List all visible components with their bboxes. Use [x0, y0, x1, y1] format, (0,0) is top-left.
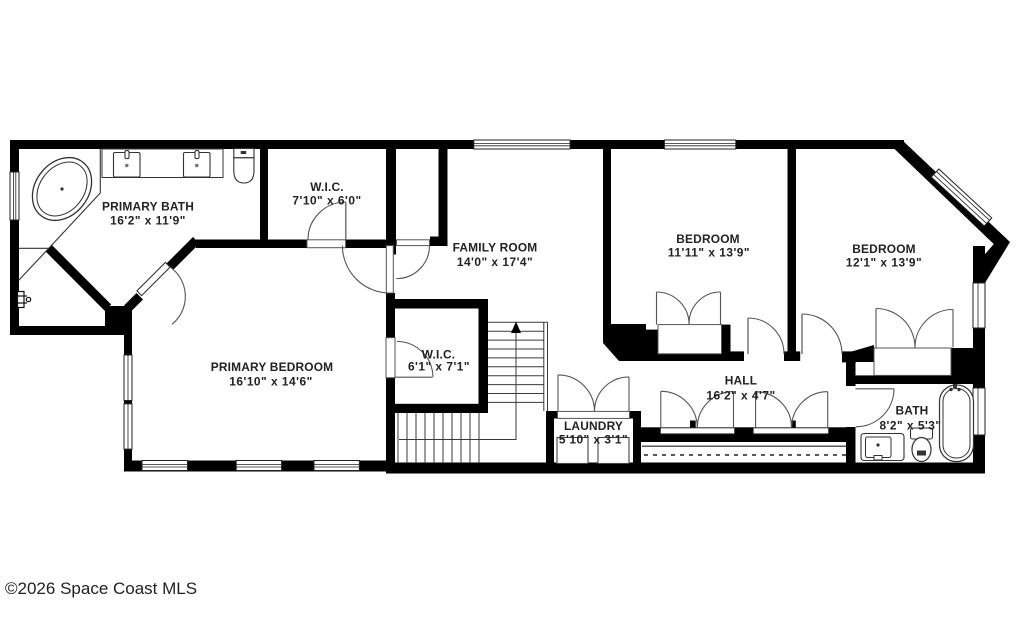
svg-text:LAUNDRY: LAUNDRY [564, 419, 623, 433]
svg-text:16'2" x 11'9": 16'2" x 11'9" [110, 214, 186, 228]
svg-text:HALL: HALL [725, 374, 758, 388]
svg-text:BEDROOM: BEDROOM [852, 242, 916, 256]
svg-text:PRIMARY BEDROOM: PRIMARY BEDROOM [211, 360, 334, 374]
svg-text:7'10" x 6'0": 7'10" x 6'0" [292, 194, 361, 208]
svg-text:W.I.C.: W.I.C. [310, 180, 344, 194]
svg-text:8'2" x 5'3": 8'2" x 5'3" [879, 419, 941, 433]
svg-text:5'10" x 3'1": 5'10" x 3'1" [559, 433, 628, 447]
svg-text:11'11" x 13'9": 11'11" x 13'9" [668, 246, 750, 260]
svg-text:PRIMARY BATH: PRIMARY BATH [102, 200, 194, 214]
svg-text:6'1" x 7'1": 6'1" x 7'1" [408, 360, 470, 374]
svg-text:16'10" x 14'6": 16'10" x 14'6" [229, 375, 312, 389]
svg-text:16'2" x 4'7": 16'2" x 4'7" [706, 389, 775, 403]
svg-text:©2026 Space Coast MLS: ©2026 Space Coast MLS [5, 579, 197, 598]
svg-text:BEDROOM: BEDROOM [676, 232, 740, 246]
svg-text:BATH: BATH [896, 404, 929, 418]
svg-text:FAMILY ROOM: FAMILY ROOM [453, 241, 538, 255]
svg-text:12'1" x 13'9": 12'1" x 13'9" [846, 256, 922, 270]
svg-text:14'0" x 17'4": 14'0" x 17'4" [457, 255, 533, 269]
